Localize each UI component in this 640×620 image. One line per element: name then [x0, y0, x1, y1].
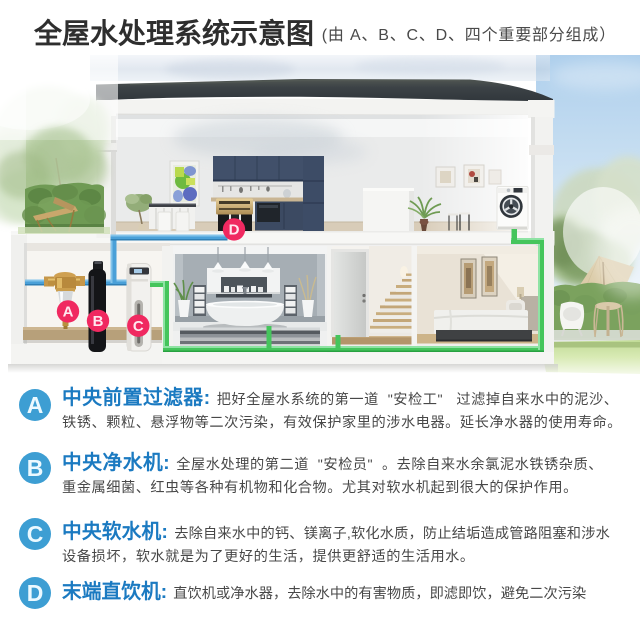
svg-text:A: A — [63, 304, 74, 321]
svg-text:C: C — [133, 318, 144, 335]
svg-text:D: D — [229, 222, 240, 239]
svg-text:B: B — [93, 313, 104, 330]
